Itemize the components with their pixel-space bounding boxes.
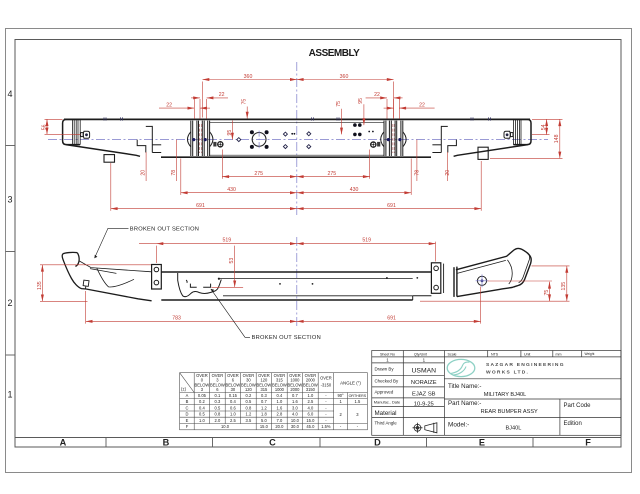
svg-text:NTS: NTS [491,352,499,356]
svg-text:95: 95 [358,98,364,104]
svg-text:Sheet No: Sheet No [380,352,395,356]
svg-text:Qty/Unit: Qty/Unit [414,352,427,356]
svg-text:0.4: 0.4 [230,399,236,404]
svg-text:2.8: 2.8 [277,412,283,417]
svg-text:ANGLE (°): ANGLE (°) [340,381,361,386]
svg-text:5.0: 5.0 [261,418,267,423]
svg-text:0.3: 0.3 [215,399,221,404]
svg-text:75: 75 [544,290,550,296]
svg-text:360: 360 [340,74,349,80]
svg-text:6.0: 6.0 [308,412,314,417]
svg-text:BJ40L: BJ40L [505,426,521,432]
svg-text:10.0: 10.0 [291,418,300,423]
svg-text:2: 2 [7,298,12,308]
svg-text:Checked By: Checked By [375,378,399,383]
svg-text:275: 275 [254,171,263,177]
svg-text:NORAIZE: NORAIZE [411,380,437,386]
svg-text:519: 519 [222,238,231,244]
svg-text:0.5: 0.5 [199,412,205,417]
svg-text:0.8: 0.8 [246,405,252,410]
svg-text:148: 148 [554,134,560,143]
svg-text:F: F [585,437,591,447]
svg-text:1.2: 1.2 [261,405,267,410]
svg-text:USMAN: USMAN [412,367,437,374]
svg-text:20: 20 [445,170,451,176]
svg-text:A: A [60,437,67,447]
svg-text:0.2: 0.2 [199,399,205,404]
svg-text:45.0: 45.0 [306,424,315,429]
svg-text:15.0: 15.0 [260,424,269,429]
svg-text:1.5: 1.5 [355,399,361,404]
svg-text:90°: 90° [337,393,344,398]
svg-text:BROKEN OUT SECTION: BROKEN OUT SECTION [252,335,321,341]
svg-text:0.6: 0.6 [230,405,236,410]
svg-text:1: 1 [7,389,12,399]
svg-text:B: B [163,437,170,447]
svg-text:1.6: 1.6 [292,399,298,404]
svg-text:54: 54 [541,124,547,130]
svg-text:OVER: OVER [320,376,332,381]
svg-text:691: 691 [387,203,396,209]
svg-text:75: 75 [336,101,342,107]
svg-text:EJAZ SB: EJAZ SB [412,391,436,397]
svg-text:95: 95 [227,130,233,136]
svg-text:2.5: 2.5 [230,418,236,423]
svg-text:Weight: Weight [585,352,595,356]
svg-text:10.0: 10.0 [221,424,230,429]
svg-text:REAR BUMPER ASSY: REAR BUMPER ASSY [481,409,538,415]
svg-text:22: 22 [219,92,225,98]
svg-text:1.2: 1.2 [246,412,252,417]
svg-text:1.0: 1.0 [199,418,205,423]
svg-text:120: 120 [245,387,253,392]
svg-text:0.3: 0.3 [261,393,267,398]
svg-text:22: 22 [374,92,380,98]
svg-text:BROKEN OUT SECTION: BROKEN OUT SECTION [130,226,199,232]
svg-text:B: B [186,399,189,404]
svg-text:C: C [269,437,276,447]
svg-text:691: 691 [387,316,396,322]
svg-text:7.0: 7.0 [277,418,283,423]
svg-text:10-9-25: 10-9-25 [414,401,434,407]
svg-text:2.0: 2.0 [215,418,221,423]
svg-text:ASSEMBLY: ASSEMBLY [309,48,360,59]
svg-text:3150: 3150 [306,387,316,392]
svg-text:MILITARY BJ40L: MILITARY BJ40L [484,392,527,398]
svg-text:0.7: 0.7 [292,393,298,398]
svg-text:30: 30 [231,387,236,392]
svg-text:3.0: 3.0 [292,405,298,410]
svg-text:75: 75 [241,99,247,105]
svg-text:275: 275 [327,171,336,177]
svg-text:mm: mm [556,352,562,356]
svg-text:C: C [186,405,189,410]
svg-text:20.0: 20.0 [275,424,284,429]
svg-text:360: 360 [244,74,253,80]
svg-text:53: 53 [229,258,235,264]
svg-text:0.5: 0.5 [246,399,252,404]
svg-text:0.5: 0.5 [215,405,221,410]
svg-text:1.6: 1.6 [277,405,283,410]
svg-text:ORTHERS: ORTHERS [349,394,367,398]
svg-text:22: 22 [166,102,172,108]
svg-text:E: E [186,418,189,423]
svg-text:0.05: 0.05 [198,393,207,398]
svg-text:78: 78 [415,170,421,176]
svg-text:20: 20 [141,170,147,176]
svg-text:4: 4 [7,89,12,99]
svg-text:Scale: Scale [448,352,457,356]
svg-text:1.0: 1.0 [277,399,283,404]
svg-text:0.8: 0.8 [215,412,221,417]
svg-text:2000: 2000 [290,387,300,392]
svg-text:135: 135 [37,281,43,290]
svg-text:Unit: Unit [524,352,530,356]
svg-text:D: D [186,412,189,417]
svg-text:56: 56 [41,124,47,130]
svg-text:315: 315 [260,387,268,392]
svg-text:1.0: 1.0 [308,393,314,398]
svg-text:E: E [479,437,485,447]
svg-text:3: 3 [7,194,12,204]
svg-text:(±): (±) [181,387,187,392]
svg-text:Manufac.. Date: Manufac.. Date [374,400,400,405]
svg-text:691: 691 [196,203,205,209]
svg-text:0.7: 0.7 [261,399,267,404]
svg-text:1.5%: 1.5% [321,424,331,429]
svg-text:1.0: 1.0 [230,412,236,417]
svg-text:78: 78 [171,170,177,176]
svg-text:2.5: 2.5 [308,399,314,404]
svg-text:Third Angle: Third Angle [375,420,398,425]
svg-text:22: 22 [419,102,425,108]
svg-text:15.0: 15.0 [306,418,315,423]
svg-text:135: 135 [561,282,567,291]
svg-text:Part Name:-: Part Name:- [448,400,481,407]
svg-text:0.4: 0.4 [277,393,283,398]
svg-text:Drawn By: Drawn By [375,367,395,372]
svg-text:519: 519 [362,238,371,244]
svg-text:A: A [186,393,189,398]
svg-text:Part Code: Part Code [564,403,592,409]
svg-text:783: 783 [172,316,181,322]
svg-text:Title Name:-: Title Name:- [448,383,481,390]
svg-text:4.0: 4.0 [292,412,298,417]
svg-text:Model:-: Model:- [448,421,469,428]
svg-text:SAZGAR ENGINEERING: SAZGAR ENGINEERING [486,362,565,368]
svg-text:30.0: 30.0 [291,424,300,429]
svg-text:0.15: 0.15 [229,393,238,398]
svg-text:3.5: 3.5 [246,418,252,423]
svg-text:-3150: -3150 [321,383,332,388]
svg-text:WORKS LTD.: WORKS LTD. [486,369,529,375]
svg-text:0.2: 0.2 [246,393,252,398]
svg-text:Edition: Edition [564,421,582,427]
svg-text:Material: Material [375,410,397,417]
svg-text:1.8: 1.8 [261,412,267,417]
svg-text:D: D [374,437,381,447]
svg-text:Approved: Approved [375,390,394,395]
svg-text:430: 430 [227,187,236,193]
svg-text:430: 430 [350,187,359,193]
svg-text:4.0: 4.0 [308,405,314,410]
svg-text:0.1: 0.1 [215,393,221,398]
svg-text:1000: 1000 [275,387,285,392]
svg-text:0.4: 0.4 [199,405,205,410]
